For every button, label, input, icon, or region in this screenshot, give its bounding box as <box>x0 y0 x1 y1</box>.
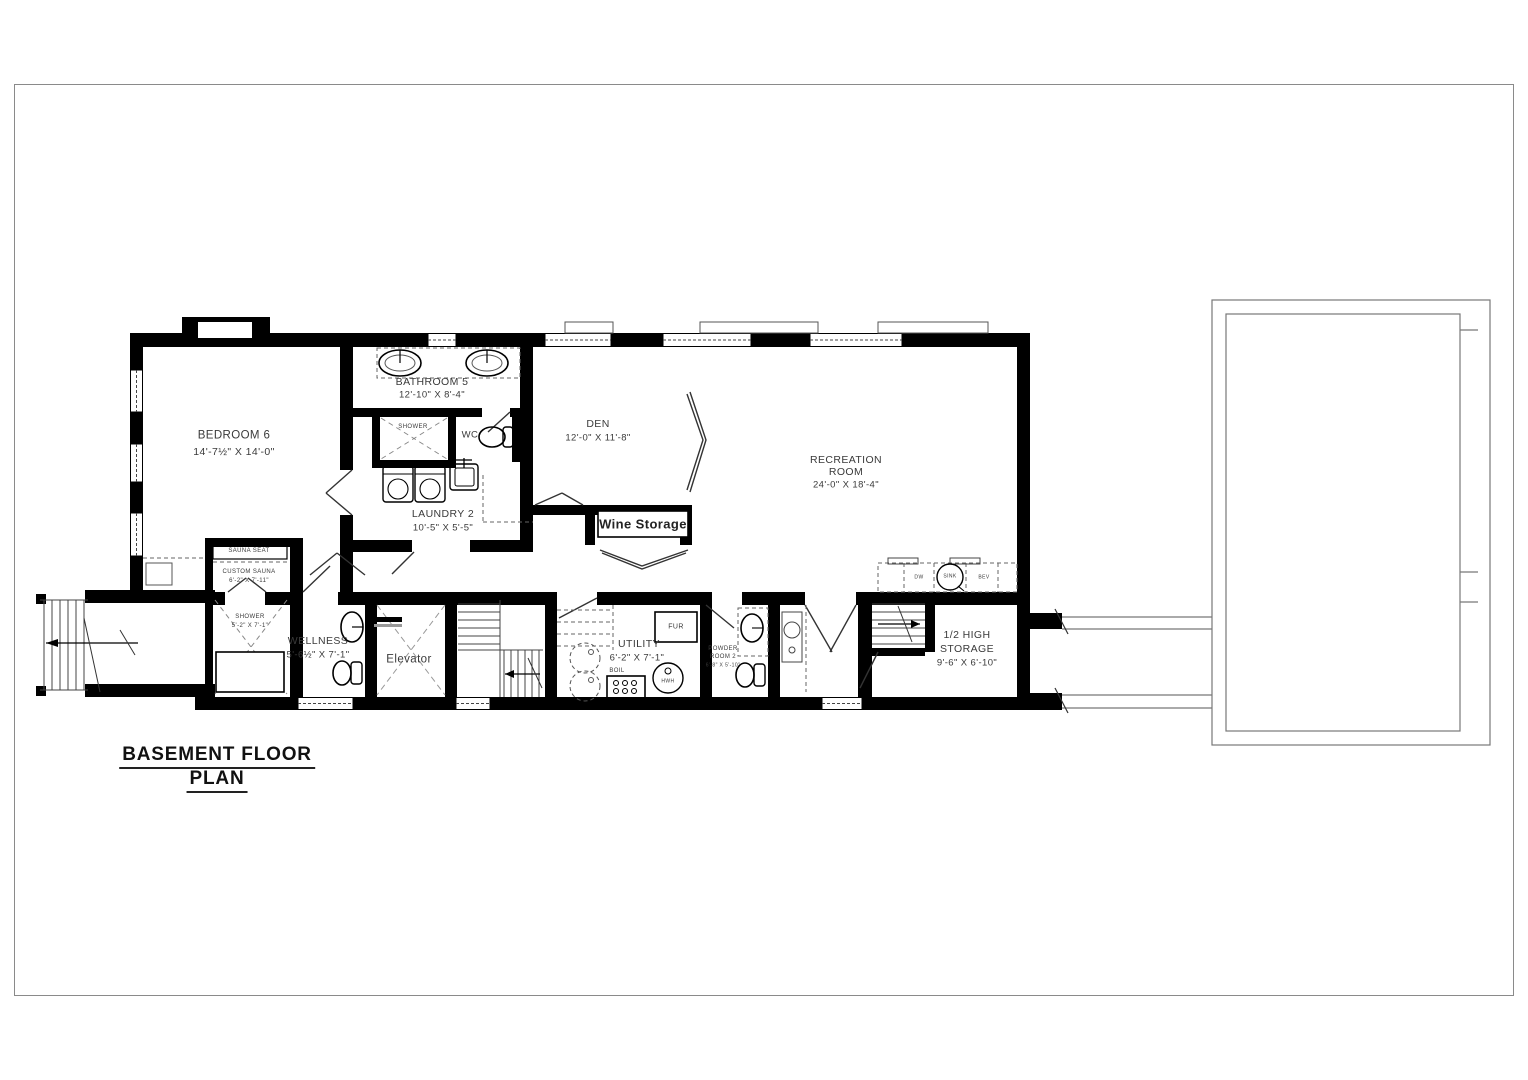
hwh-label: HWH <box>661 680 674 685</box>
utility-label: UTILITY <box>618 639 660 650</box>
dishwasher-label: DW <box>914 576 923 581</box>
half-storage-label-2: STORAGE <box>940 644 994 655</box>
powder-label-2: ROOM 2 <box>710 654 736 660</box>
wellness-shower-label: SHOWER <box>235 614 264 620</box>
powder-label-1: POWDER <box>708 646 737 652</box>
entry-stairs <box>40 600 138 692</box>
bathroom5-dims: 12'-10" X 8'-4" <box>399 390 465 400</box>
floor-plan-drawing <box>0 0 1528 1080</box>
furnace-label: FUR <box>668 624 684 631</box>
half-storage-label-1: 1/2 HIGH <box>944 630 991 641</box>
elevator-shaft <box>374 605 445 695</box>
wellness-shower-dims: 5'-2" X 7'-1" <box>232 623 268 629</box>
sauna-seat-label: SAUNA SEAT <box>228 548 269 554</box>
bar-sink-label: SINK <box>943 575 956 580</box>
walkways <box>1055 609 1212 713</box>
den-dims: 12'-0" X 11'-8" <box>565 433 630 443</box>
wc-label: WC <box>462 430 479 440</box>
recreation-dims: 24'-0" X 18'-4" <box>813 480 879 490</box>
sheet-title-line2: PLAN <box>187 769 248 793</box>
laundry2-label: LAUNDRY 2 <box>412 509 474 520</box>
powder-fixtures <box>736 608 768 687</box>
chimney-niche <box>198 322 252 338</box>
custom-sauna-label: CUSTOM SAUNA <box>222 569 275 575</box>
bedroom6-label: BEDROOM 6 <box>198 430 271 442</box>
pool-terrace <box>1212 300 1490 745</box>
bedroom6-dims: 14'-7½" X 14'-0" <box>193 447 275 458</box>
recreation-label-1: RECREATION <box>810 455 882 466</box>
beverage-label: BEV <box>978 576 989 581</box>
main-stairs <box>458 600 543 697</box>
boiler-label: BOIL <box>609 668 624 674</box>
bath-shower-label: SHOWER <box>398 424 427 430</box>
utility-dims: 6'-2" X 7'-1" <box>610 653 665 663</box>
den-label: DEN <box>586 419 609 430</box>
custom-sauna-dims: 6'-2" X 7'-11" <box>229 578 269 584</box>
wellness-dims: 5'-6½" X 7'-1" <box>287 650 350 660</box>
wellness-label: WELLNESS <box>288 636 348 647</box>
storage-stairs <box>872 604 925 644</box>
half-storage-dims: 9'-6" X 6'-10" <box>937 658 997 668</box>
basement-floor-plan-sheet: BEDROOM 6 14'-7½" X 14'-0" BATHROOM 5 12… <box>0 0 1528 1080</box>
hallway-closet <box>782 605 806 692</box>
laundry2-dims: 10'-5" X 5'-5" <box>413 523 473 533</box>
bathroom5-label: BATHROOM 5 <box>396 377 469 388</box>
sheet-title-line1: BASEMENT FLOOR <box>119 745 315 769</box>
wine-storage-label: Wine Storage <box>599 518 687 531</box>
elevator-label: Elevator <box>386 654 431 666</box>
powder-dims: 6'-8" X 5'-10" <box>706 664 740 669</box>
recreation-label-2: ROOM <box>829 467 863 478</box>
